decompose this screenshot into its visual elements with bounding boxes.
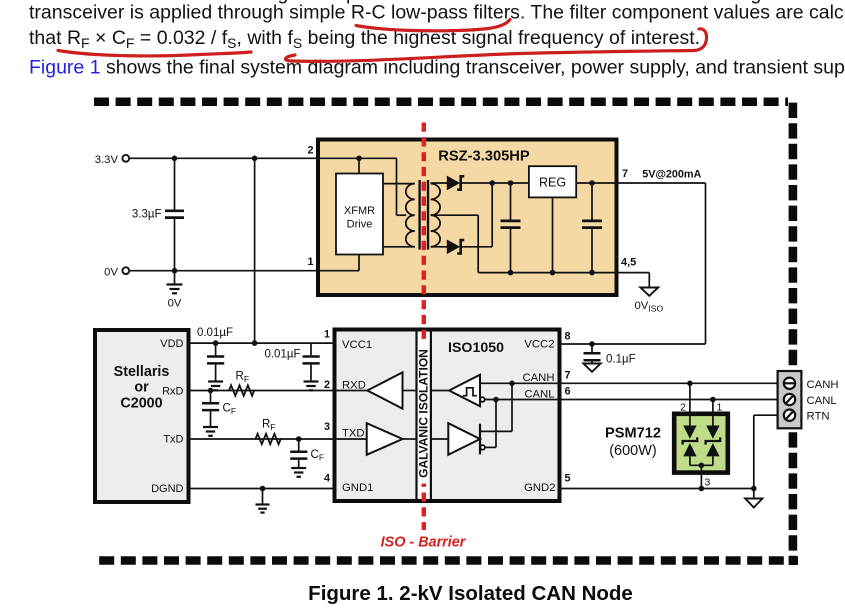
svg-text:GALVANIC ISOLATION: GALVANIC ISOLATION <box>417 349 431 478</box>
svg-text:3.3µF: 3.3µF <box>132 209 162 221</box>
svg-text:2: 2 <box>324 379 330 391</box>
svg-text:0.01µF: 0.01µF <box>264 349 300 361</box>
svg-text:ISO1050: ISO1050 <box>448 340 504 356</box>
svg-text:1: 1 <box>717 402 723 414</box>
svg-text:REG: REG <box>539 176 566 190</box>
svg-text:8: 8 <box>565 331 571 343</box>
svg-text:1: 1 <box>324 329 330 341</box>
svg-text:RTN: RTN <box>807 410 830 422</box>
svg-text:1: 1 <box>307 256 313 268</box>
svg-text:0V: 0V <box>168 298 182 310</box>
svg-text:CANH: CANH <box>807 379 839 391</box>
svg-text:7: 7 <box>622 168 628 180</box>
svg-text:GND1: GND1 <box>342 482 373 494</box>
svg-text:TXD: TXD <box>342 428 365 440</box>
svg-text:0.01µF: 0.01µF <box>197 327 233 339</box>
svg-text:VDD: VDD <box>160 338 183 350</box>
svg-text:2: 2 <box>307 145 313 157</box>
svg-text:0V: 0V <box>104 267 118 279</box>
svg-text:VCC2: VCC2 <box>524 339 554 351</box>
svg-text:RSZ-3.305HP: RSZ-3.305HP <box>438 149 530 165</box>
svg-text:Figure 1. 2-kV Isolated CAN No: Figure 1. 2-kV Isolated CAN Node <box>308 582 633 605</box>
svg-text:CANL: CANL <box>807 395 837 407</box>
svg-text:3: 3 <box>324 421 330 433</box>
svg-text:Stellaris: Stellaris <box>114 364 170 380</box>
svg-text:CANH: CANH <box>522 372 554 384</box>
svg-text:C2000: C2000 <box>120 396 162 412</box>
svg-text:2: 2 <box>680 402 686 414</box>
svg-text:XFMR: XFMR <box>344 205 375 217</box>
svg-text:3: 3 <box>705 477 711 489</box>
svg-text:RxD: RxD <box>162 386 183 398</box>
svg-text:(600W): (600W) <box>609 443 657 459</box>
svg-text:5: 5 <box>565 473 571 485</box>
svg-text:transceiver is applied through: transceiver is applied through simple R-… <box>29 2 845 24</box>
svg-text:6: 6 <box>565 386 571 398</box>
svg-text:0.1µF: 0.1µF <box>606 354 636 366</box>
svg-text:4,5: 4,5 <box>621 257 636 269</box>
svg-text:TxD: TxD <box>163 434 183 446</box>
svg-text:GND2: GND2 <box>524 482 555 494</box>
svg-text:PSM712: PSM712 <box>605 426 661 442</box>
svg-text:VCC1: VCC1 <box>342 339 372 351</box>
svg-text:or: or <box>134 380 149 396</box>
svg-text:Drive: Drive <box>347 219 373 231</box>
svg-text:4: 4 <box>324 473 330 485</box>
svg-text:DGND: DGND <box>151 483 183 495</box>
svg-text:7: 7 <box>565 370 571 382</box>
svg-text:5V@200mA: 5V@200mA <box>642 168 701 180</box>
svg-text:3.3V: 3.3V <box>95 154 119 166</box>
svg-text:ISO - Barrier: ISO - Barrier <box>381 535 467 551</box>
svg-text:Figure 1 shows the final syste: Figure 1 shows the final system diagram … <box>29 57 845 79</box>
